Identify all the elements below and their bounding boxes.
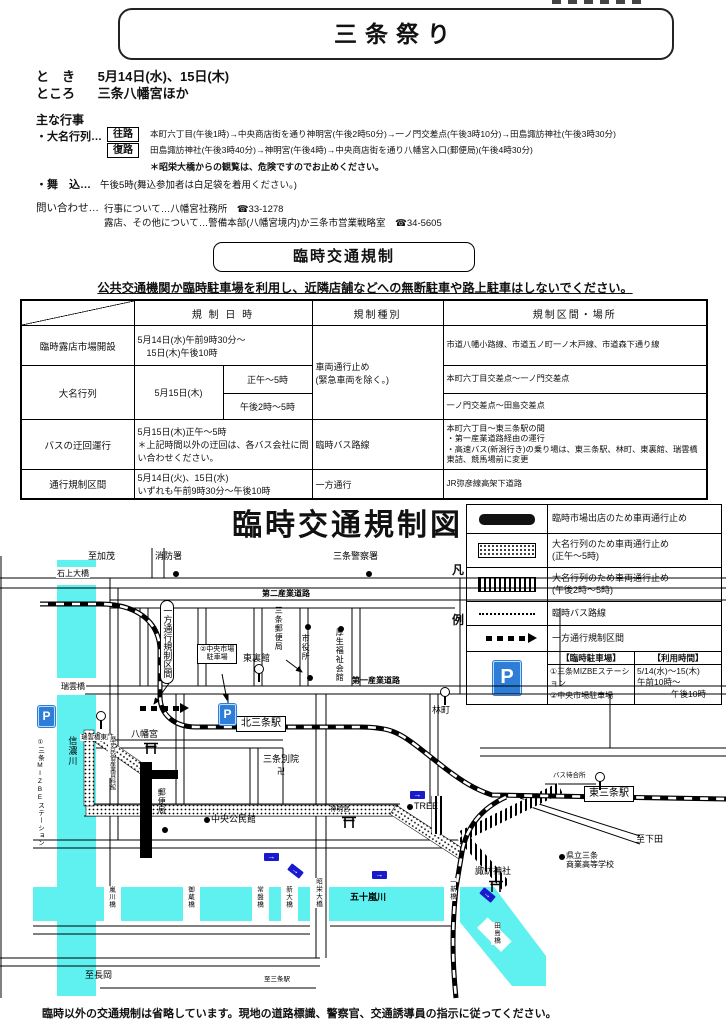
- map-label: 林町: [432, 705, 450, 715]
- regulation-notice: 公共交通機関か臨時駐車場を利用し、近隣店舗などへの無断駐車や路上駐車はしないでく…: [24, 278, 706, 296]
- map-label: 八幡宮: [131, 729, 158, 739]
- map-label: 中央公民館: [211, 814, 256, 824]
- dot-marker: [204, 817, 210, 823]
- map-label: 至下田: [636, 834, 663, 844]
- map-label: 県立三条 商業高等学校: [566, 851, 614, 869]
- parking-icon: P: [38, 706, 55, 727]
- one-way-arrow-icon: →: [264, 853, 279, 861]
- dot-marker: [173, 571, 179, 577]
- map-note: 臨時以外の交通規制は省略しています。現地の道路標識、警察官、交通誘導員の指示に従…: [42, 1005, 557, 1021]
- return-tag: 復路: [107, 143, 139, 158]
- contact-line-1: 行事について…八幡宮社務所 ☎33-1278: [104, 201, 283, 215]
- col-header-area: 規制区間・場所: [443, 300, 707, 326]
- map-label: 常盤橋: [254, 886, 263, 909]
- outbound-tag: 往路: [107, 127, 139, 142]
- maikomi-label: ・舞 込…: [36, 176, 91, 192]
- dot-marker: [305, 624, 311, 630]
- regulation-heading: 臨時交通規制: [213, 242, 475, 272]
- map-label: 至加茂: [88, 551, 115, 561]
- one-way-arrow-icon: →: [410, 791, 425, 799]
- map-label: 厚生福祉会館: [335, 628, 344, 682]
- col-header-datetime: 規 制 日 時: [134, 300, 312, 326]
- dot-marker: [559, 854, 565, 860]
- map-label: TREE: [414, 801, 438, 811]
- map-label: 御蔵橋: [185, 886, 194, 909]
- solid-route-swatch: [479, 514, 535, 525]
- map-label: 三条郵便局: [274, 606, 283, 651]
- diagonal-header-cell: [21, 300, 134, 326]
- table-row-market: 臨時露店市場開設 5月14日(水)午前9時30分～ 15日(木)午後10時 車両…: [21, 326, 707, 366]
- map-label: 第二産業道路: [262, 589, 310, 598]
- map-label: 卍: [277, 767, 285, 776]
- map-label: 郵便局: [157, 788, 166, 815]
- map-label: 石上大橋: [56, 569, 90, 578]
- map-label: 昭栄大橋: [313, 878, 322, 908]
- map-label: 歴史民俗産業資料館: [108, 736, 115, 778]
- traffic-map: 至加茂消防署三条警察署石上大橋第二産業道路第一産業道路一方通行規制区間三条郵便局…: [0, 548, 726, 1005]
- map-label: バス待合所: [553, 772, 586, 779]
- map-label: ②中央市場 駐車場: [197, 644, 237, 664]
- dot-marker: [307, 675, 313, 681]
- dashed-arrow-icon: [140, 706, 180, 711]
- bus-stop-icon: [440, 687, 450, 697]
- table-header-row: 規 制 日 時 規制種別 規制区間・場所: [21, 300, 707, 326]
- map-label: 諏訪神社: [475, 866, 511, 876]
- bridge-warning: ＊昭栄大橋からの観覧は、危険ですのでお止めください。: [150, 160, 384, 173]
- outbound-route: 本町六丁目(午後1時)→中央商店街を通り神明宮(午後2時50分)→一ノ門交差点(…: [150, 129, 716, 139]
- clipped-text-fragment: [552, 0, 648, 4]
- one-way-arrow-icon: →: [372, 871, 387, 879]
- map-label: 消防署: [155, 551, 182, 561]
- return-route: 田島諏訪神社(午後3時40分)→神明宮(午後4時)→中央商店街を通り八幡宮入口(…: [150, 145, 716, 155]
- map-label: 三条別院: [263, 754, 299, 764]
- map-label: 北三条駅: [236, 716, 286, 732]
- map-label: 東三条駅: [584, 786, 634, 802]
- map-label: 至三条駅: [264, 976, 290, 983]
- col-header-type: 規制種別: [312, 300, 443, 326]
- page-title: 三条祭り: [118, 8, 674, 60]
- map-label: 瑞雲橋: [60, 682, 86, 691]
- map-label: 東裏館: [243, 653, 270, 663]
- map-label: 田島橋: [491, 922, 500, 945]
- where-row: ところ 三条八幡宮ほか: [36, 83, 189, 102]
- bus-stop-icon: [96, 711, 106, 721]
- map-label: 一新橋: [447, 878, 456, 901]
- contact-label: 問い合わせ…: [36, 200, 99, 215]
- events-heading: 主な行事: [36, 111, 84, 128]
- map-label: 新大橋: [283, 886, 292, 909]
- contact-line-2: 露店、その他について…警備本部(八幡宮境内)か三条市営業戦略室 ☎34-5605: [104, 215, 442, 229]
- bus-stop-icon: [595, 772, 605, 782]
- dot-marker: [162, 827, 168, 833]
- daimyo-label: ・大名行列…: [36, 128, 102, 144]
- table-row-bus: バスの迂回運行 5月15日(木)正午～5時 ＊上記時間以外の迂回は、各バス会社に…: [21, 420, 707, 470]
- dot-marker: [366, 571, 372, 577]
- parking-icon: P: [219, 704, 236, 725]
- where-label: ところ: [36, 83, 94, 102]
- map-label: ①三条MIZBEステーション: [36, 738, 43, 847]
- map-label: 三条警察署: [333, 551, 378, 561]
- dot-marker: [407, 804, 413, 810]
- when-value: 5月14日(水)、15日(木): [98, 69, 229, 84]
- table-row-oneway: 通行規制区間 5月14日(火)、15日(水) いずれも午前9時30分～午後10時…: [21, 470, 707, 500]
- map-label: 第一産業道路: [352, 676, 400, 685]
- dot-marker: [338, 626, 344, 632]
- map-label: 嵐川橋: [106, 886, 115, 909]
- map-title: 臨時交通規制図: [232, 500, 463, 544]
- map-label: 神明宮: [330, 806, 350, 813]
- map-label: 至長岡: [85, 970, 112, 980]
- map-label: 一方通行規制区間: [160, 600, 174, 684]
- legend-item-market: 臨時市場出店のため車両通行止め: [467, 505, 721, 534]
- map-label: 信濃川: [67, 736, 77, 766]
- map-label: 五十嵐川: [350, 892, 386, 902]
- regulation-table: 規 制 日 時 規制種別 規制区間・場所 臨時露店市場開設 5月14日(水)午前…: [20, 299, 708, 500]
- map-label: 市役所: [301, 634, 310, 661]
- flyer-page: 三条祭り と き 5月14日(水)、15日(木) ところ 三条八幡宮ほか 主な行…: [0, 0, 726, 1024]
- maikomi-value: 午後5時(舞込参加者は白足袋を着用ください。): [100, 177, 297, 191]
- bus-stop-icon: [254, 664, 264, 674]
- where-value: 三条八幡宮ほか: [98, 86, 189, 101]
